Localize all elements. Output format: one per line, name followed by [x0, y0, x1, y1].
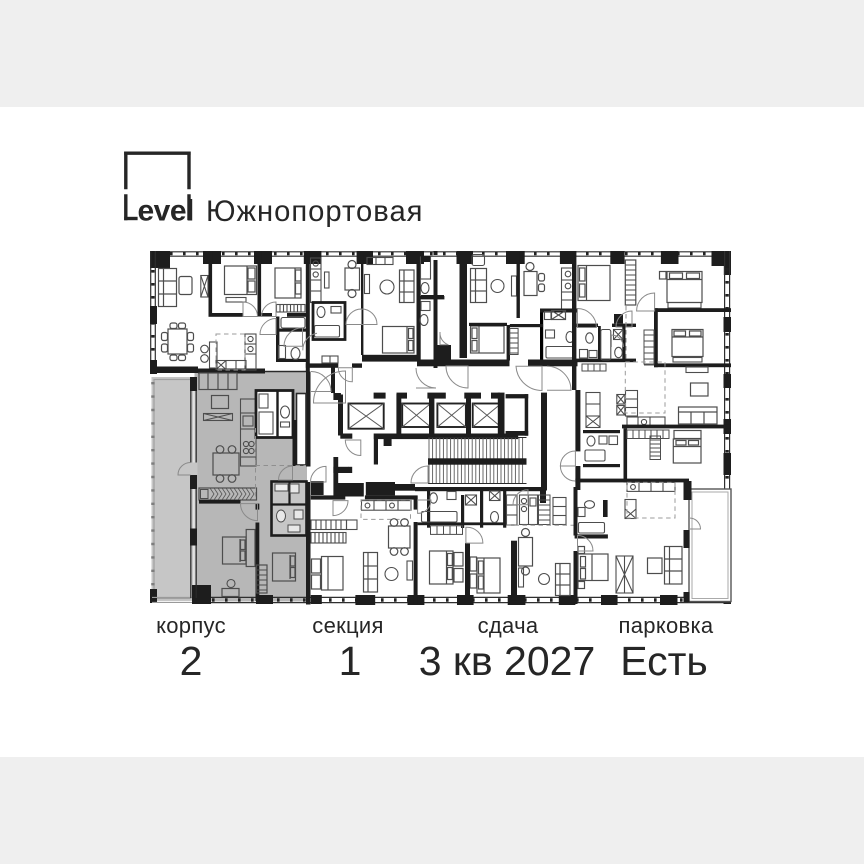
svg-text:1: 1: [339, 638, 362, 684]
svg-text:3 кв 2027: 3 кв 2027: [419, 638, 596, 684]
svg-text:сдача: сдача: [478, 613, 539, 638]
svg-text:секция: секция: [312, 613, 383, 638]
svg-text:evel: evel: [138, 195, 194, 228]
svg-text:Есть: Есть: [620, 638, 708, 684]
svg-text:Южнопортовая: Южнопортовая: [206, 196, 423, 228]
svg-text:парковка: парковка: [619, 613, 714, 638]
svg-text:2: 2: [180, 638, 203, 684]
svg-text:корпус: корпус: [156, 613, 226, 638]
